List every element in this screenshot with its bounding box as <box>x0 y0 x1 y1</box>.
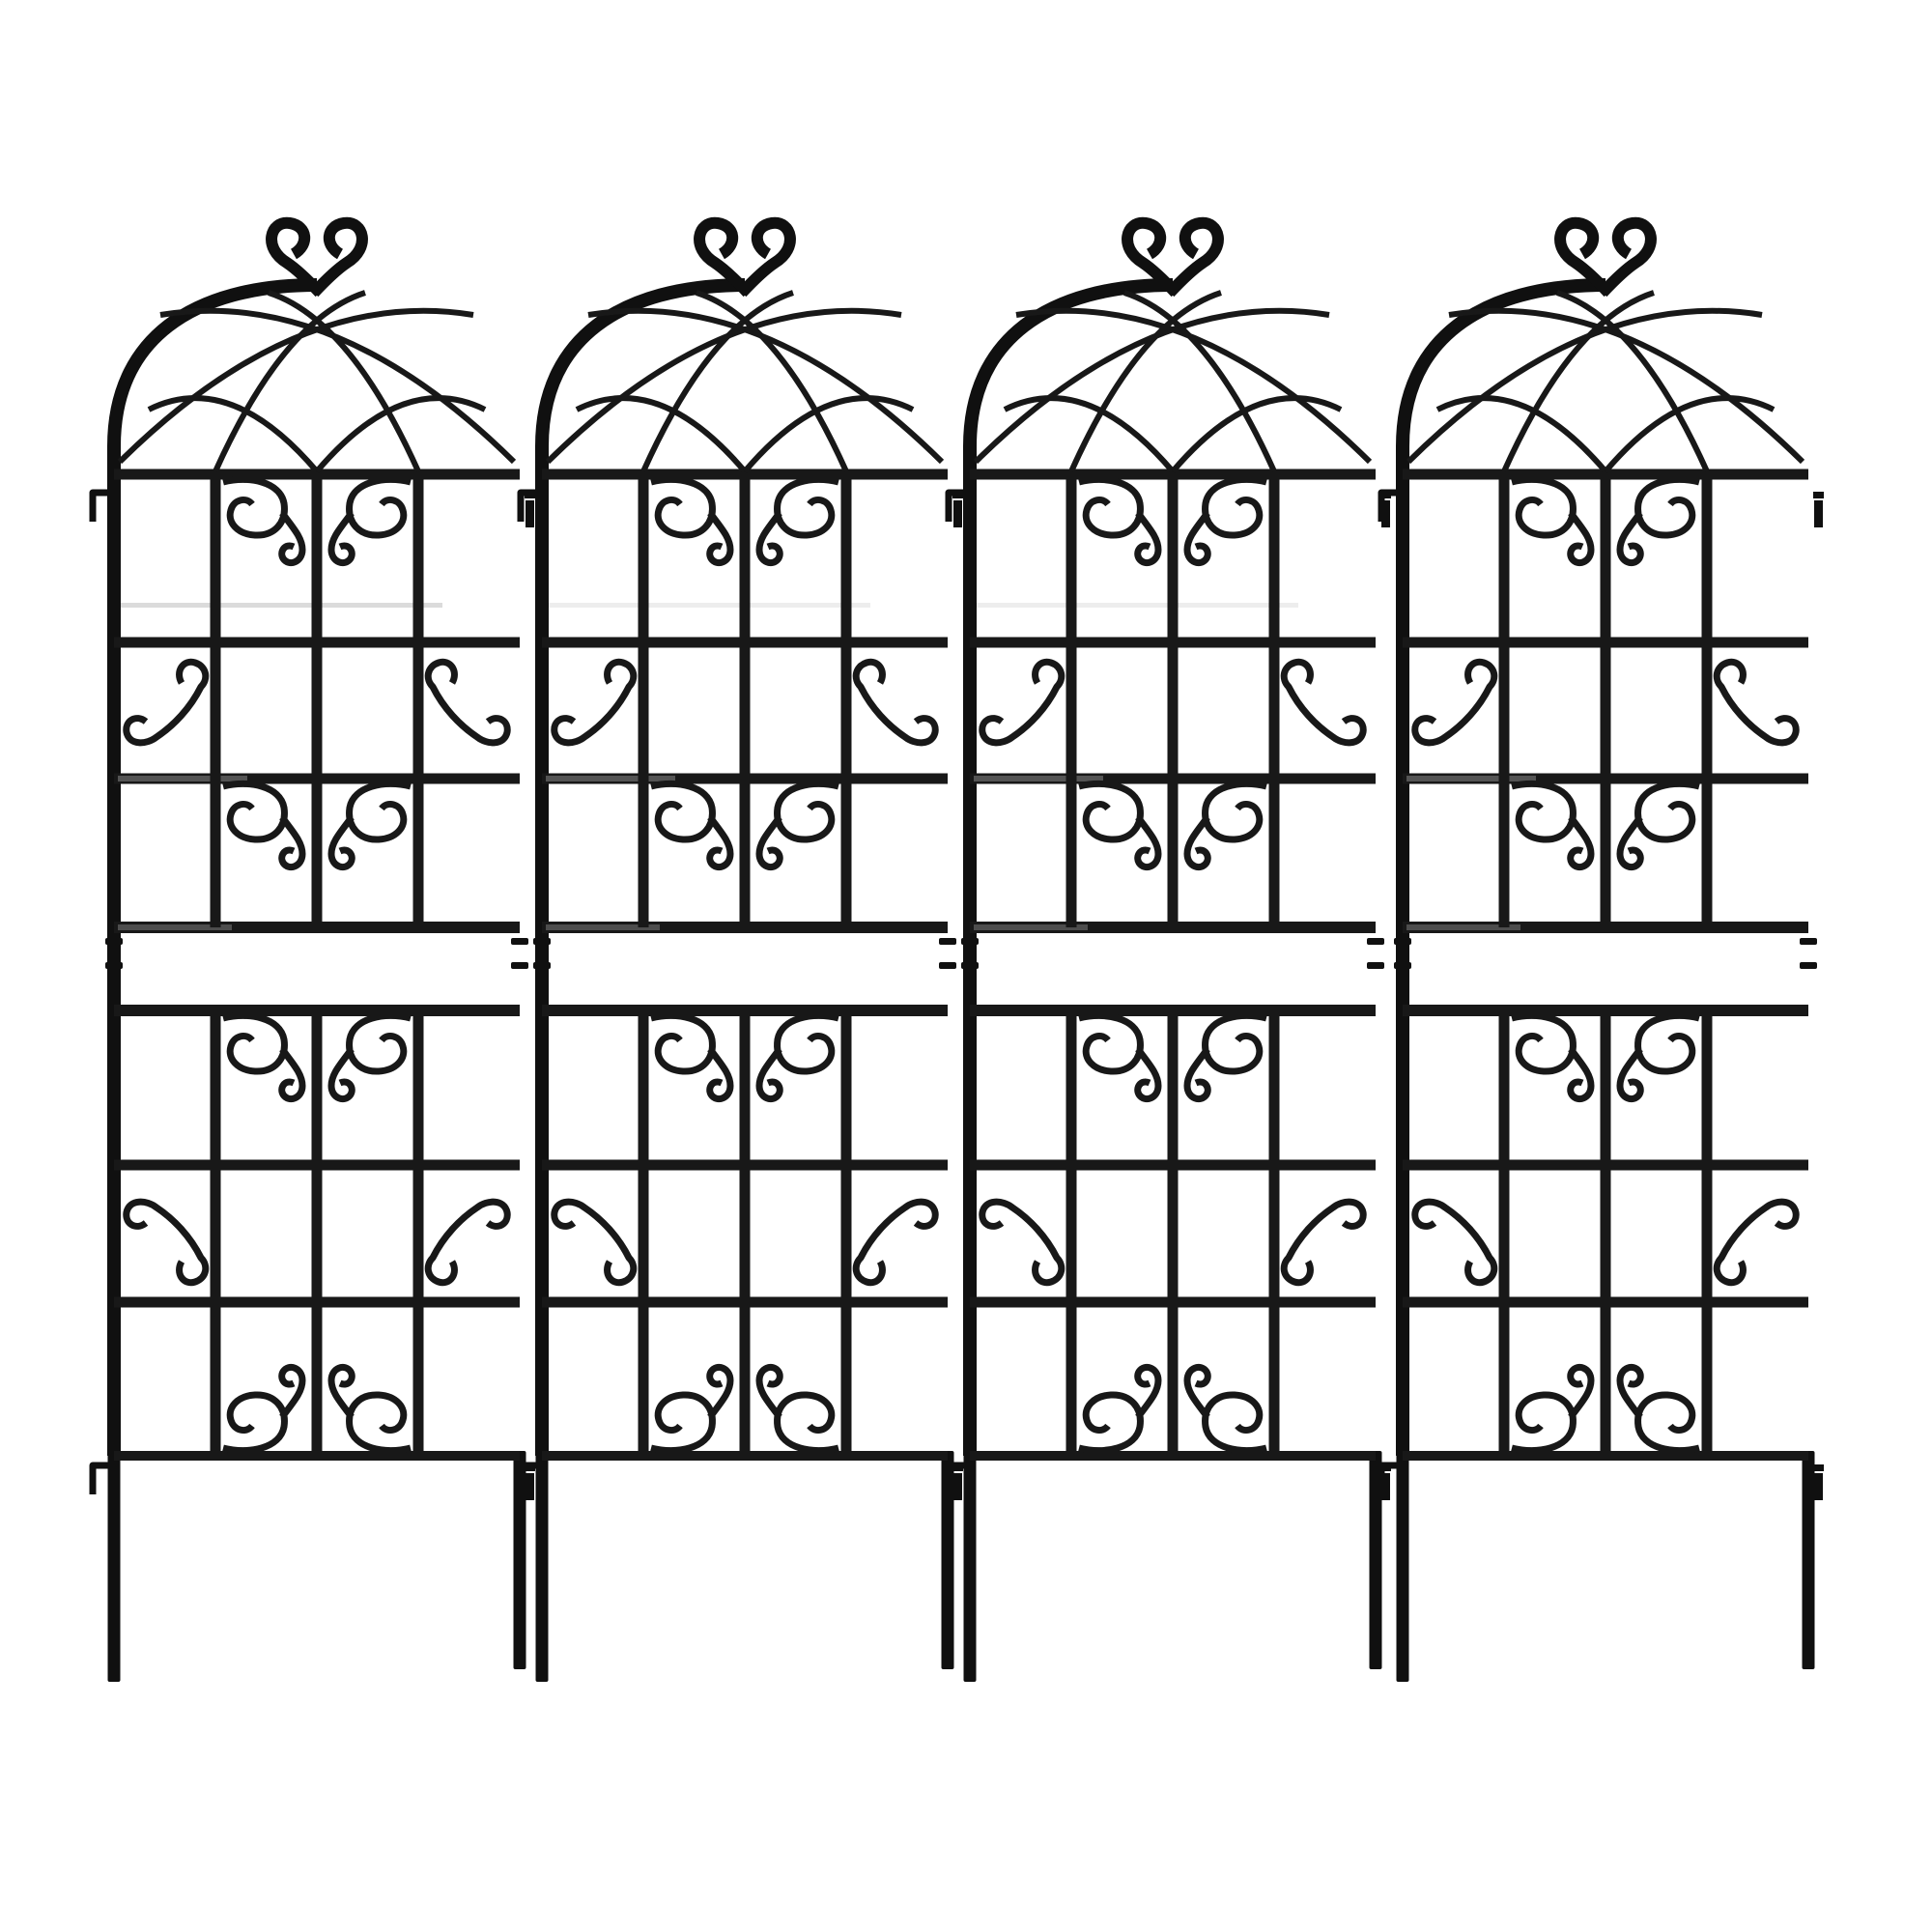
product-image-canvas <box>0 0 1932 1932</box>
trellis-panel-2 <box>521 223 963 1682</box>
trellis-panel-3 <box>949 223 1391 1682</box>
trellis-product-photo <box>0 0 1932 1932</box>
trellis-panel-4 <box>1381 223 1824 1682</box>
trellis-panel-1 <box>93 223 535 1682</box>
trellis-panels <box>93 223 1824 1682</box>
